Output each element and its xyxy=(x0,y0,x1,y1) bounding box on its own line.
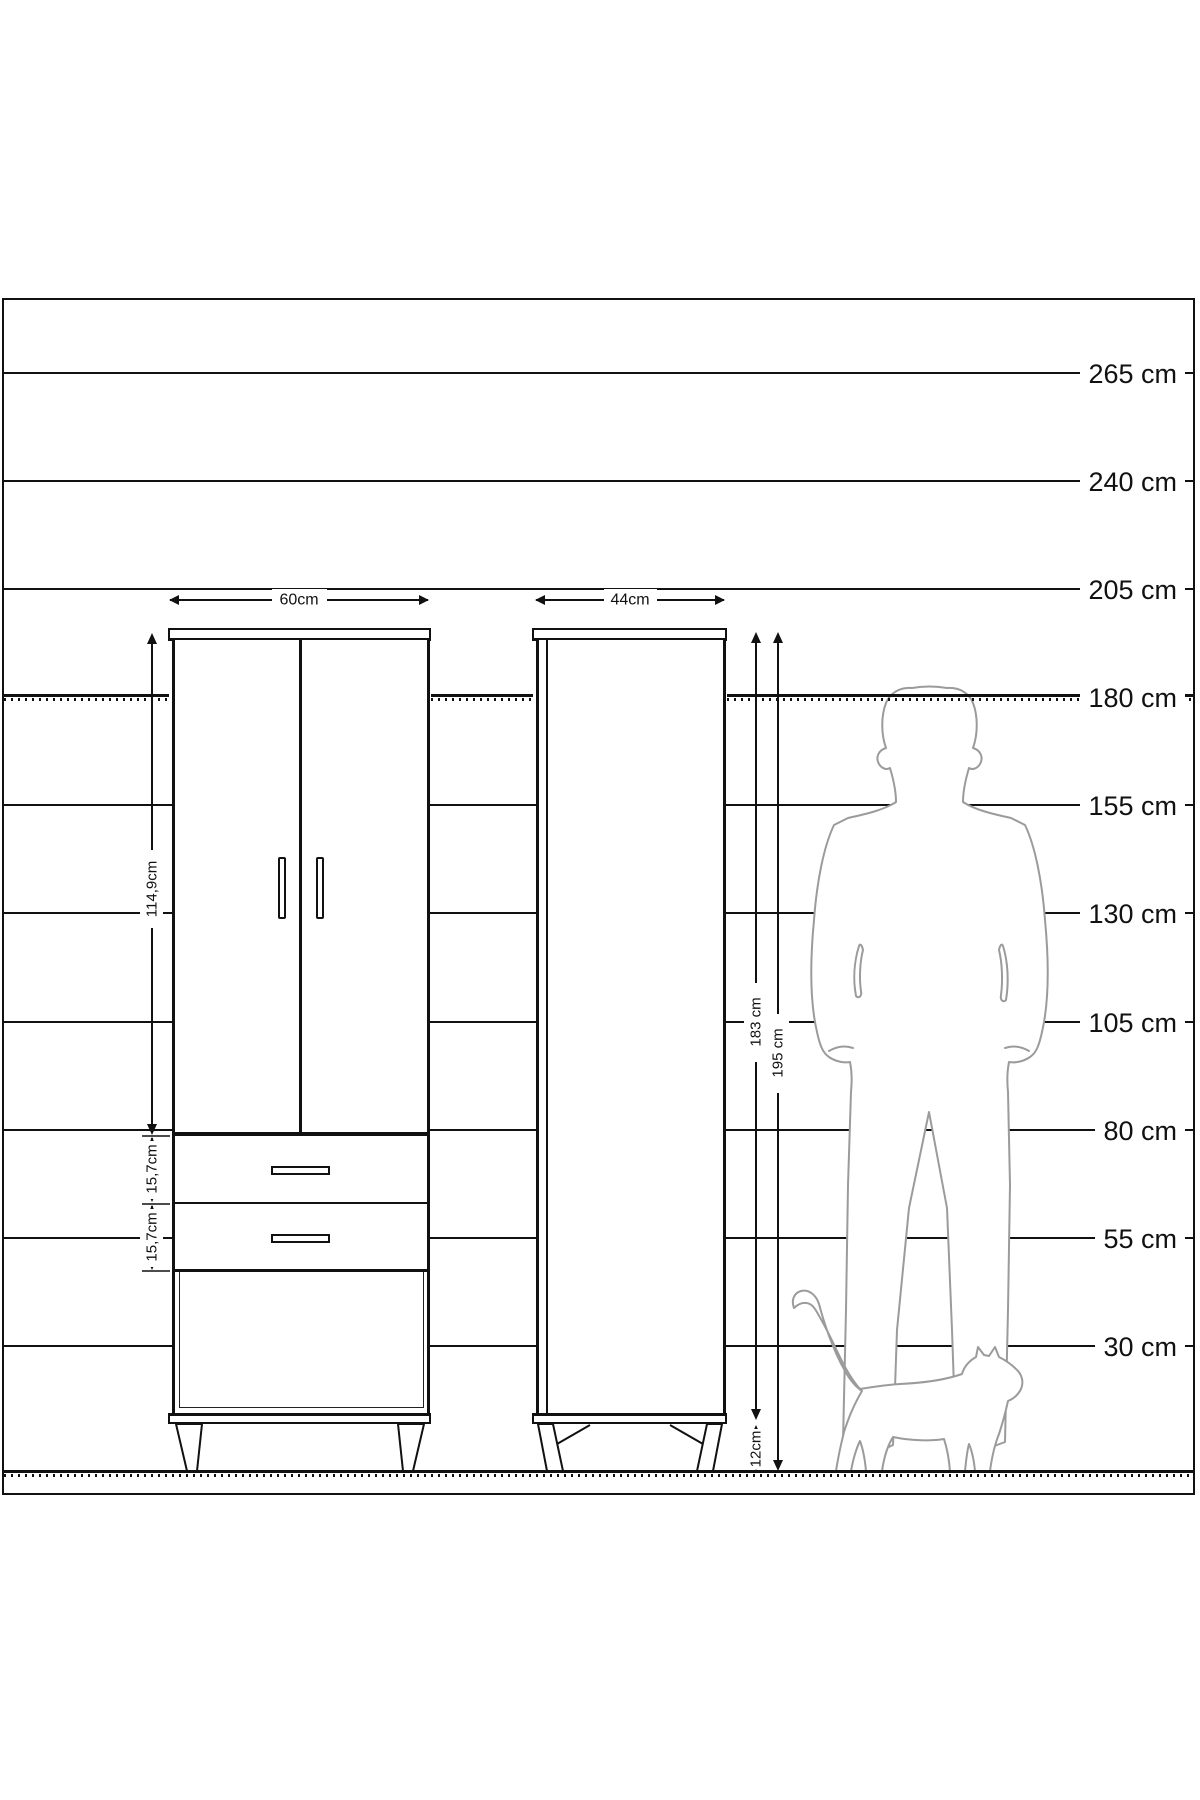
height-line-265 xyxy=(4,372,1193,374)
ruler-label-80: 80 cm xyxy=(1095,1113,1185,1149)
ruler-label-130: 130 cm xyxy=(1080,896,1185,932)
ruler-label-155: 155 cm xyxy=(1080,788,1185,824)
front-cabinet-door-gap xyxy=(299,640,302,1136)
hatch-line-180-left xyxy=(4,694,169,702)
right-door-handle xyxy=(316,857,324,919)
front-cabinet-bottom-board xyxy=(168,1413,431,1424)
open-shelf-inner xyxy=(179,1272,424,1408)
side-cabinet-body xyxy=(536,640,726,1413)
hatch-line-floor xyxy=(4,1470,1193,1478)
side-cabinet-bottom-board xyxy=(532,1413,727,1424)
hatch-line-180-middle xyxy=(431,694,533,702)
ruler-label-30: 30 cm xyxy=(1095,1329,1185,1365)
ruler-label-205: 205 cm xyxy=(1080,572,1185,608)
height-line-205 xyxy=(4,588,1193,590)
ruler-label-55: 55 cm xyxy=(1095,1221,1185,1257)
side-cabinet-door-edge xyxy=(546,640,548,1413)
drawer-top-handle xyxy=(271,1166,330,1175)
left-door-handle xyxy=(278,857,286,919)
drawer-bottom-handle xyxy=(271,1234,330,1243)
ruler-label-180: 180 cm xyxy=(1080,680,1185,716)
ruler-label-240: 240 cm xyxy=(1080,464,1185,500)
ruler-label-265: 265 cm xyxy=(1080,356,1185,392)
ruler-label-105: 105 cm xyxy=(1080,1005,1185,1041)
height-line-240 xyxy=(4,480,1193,482)
dimension-diagram: 60cm 44cm 114,9cm 15,7cm 15,7cm 183 cm 1… xyxy=(0,0,1200,1800)
